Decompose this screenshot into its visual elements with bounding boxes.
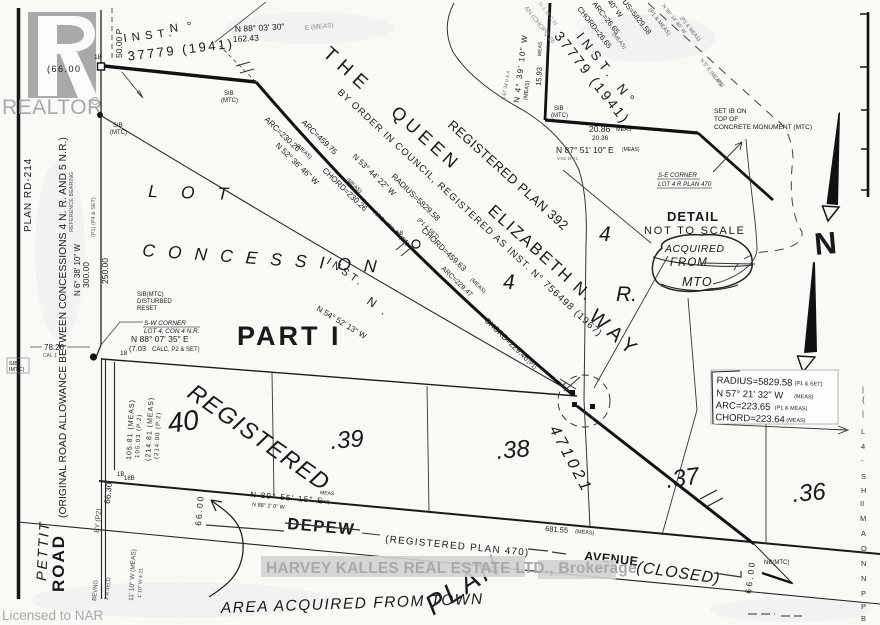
svg-text:N: N bbox=[861, 574, 866, 583]
svg-text:250.00: 250.00 bbox=[100, 258, 110, 284]
svg-text:CONCRETE MONUMENT (MTC): CONCRETE MONUMENT (MTC) bbox=[714, 124, 812, 131]
svg-text:P: P bbox=[861, 602, 866, 611]
svg-text:V-81 1P21: V-81 1P21 bbox=[557, 156, 579, 161]
svg-text:NB(MTC): NB(MTC) bbox=[764, 560, 789, 566]
svg-text:N 87° 51' 10" E: N 87° 51' 10" E bbox=[556, 145, 614, 155]
svg-text:S-E CORNER: S-E CORNER bbox=[658, 172, 697, 179]
svg-text:H: H bbox=[861, 486, 866, 495]
svg-text:.39: .39 bbox=[329, 425, 365, 455]
svg-text:18: 18 bbox=[396, 230, 404, 237]
svg-text:(MTC): (MTC) bbox=[551, 113, 568, 119]
svg-text:SIB: SIB bbox=[224, 91, 234, 97]
svg-text:REFERENCE BEARING: REFERENCE BEARING bbox=[69, 172, 75, 232]
svg-text:18: 18 bbox=[120, 350, 128, 357]
svg-text:18B: 18B bbox=[124, 476, 135, 482]
svg-text:MEAS: MEAS bbox=[616, 127, 632, 133]
svg-text:M: M bbox=[860, 514, 866, 523]
svg-text:(7.03: (7.03 bbox=[129, 344, 146, 353]
svg-text:162.43: 162.43 bbox=[233, 33, 260, 44]
svg-text:20.86: 20.86 bbox=[589, 124, 611, 134]
svg-text:(MEAS): (MEAS) bbox=[622, 147, 640, 153]
svg-text:A: A bbox=[861, 529, 866, 538]
svg-text:18: 18 bbox=[94, 54, 102, 61]
svg-text:(P2): (P2) bbox=[320, 499, 330, 506]
svg-text:REALTOR: REALTOR bbox=[2, 96, 103, 119]
svg-text:II: II bbox=[860, 499, 864, 508]
svg-text:(P1 & MEAS): (P1 & MEAS) bbox=[775, 405, 808, 412]
svg-text:PLAN RD-214: PLAN RD-214 bbox=[23, 158, 34, 232]
svg-text:.37: .37 bbox=[664, 462, 702, 494]
svg-text:40: 40 bbox=[166, 404, 202, 439]
svg-text:4: 4 bbox=[599, 223, 611, 246]
svg-text:4: 4 bbox=[503, 271, 515, 294]
svg-text:P: P bbox=[861, 589, 866, 598]
svg-text:DISTURBED: DISTURBED bbox=[137, 299, 172, 305]
svg-text:Licensed to NAR: Licensed to NAR bbox=[2, 608, 104, 623]
svg-text:MTO: MTO bbox=[682, 275, 713, 289]
svg-text:|: | bbox=[862, 385, 864, 394]
svg-text:CAL 1: CAL 1 bbox=[43, 353, 57, 359]
svg-text:DETAIL: DETAIL bbox=[667, 209, 719, 224]
svg-text:20.36: 20.36 bbox=[592, 135, 609, 142]
svg-text:(ORIGINAL ROAD ALLOWANCE BETWE: (ORIGINAL ROAD ALLOWANCE BETWEEN CONCESS… bbox=[58, 137, 69, 518]
svg-text:(66.00: (66.00 bbox=[47, 64, 82, 74]
svg-text:(P1) (P4 & SET): (P1) (P4 & SET) bbox=[91, 197, 97, 237]
svg-text:TOP OF: TOP OF bbox=[714, 116, 738, 123]
svg-text:.38: .38 bbox=[495, 435, 531, 465]
svg-text:|: | bbox=[862, 409, 864, 418]
svg-text:ACQUIRED: ACQUIRED bbox=[664, 243, 724, 255]
svg-text:ROAD: ROAD bbox=[49, 534, 68, 592]
svg-text:NOT TO SCALE: NOT TO SCALE bbox=[644, 225, 746, 237]
svg-text:ARC=223.65: ARC=223.65 bbox=[716, 400, 771, 413]
svg-text:HARVEY KALLES REAL ESTATE LTD.: HARVEY KALLES REAL ESTATE LTD., Brokerag… bbox=[266, 560, 637, 577]
svg-text:B: B bbox=[861, 614, 866, 623]
svg-text:O: O bbox=[861, 544, 867, 553]
svg-text:SET IB ON: SET IB ON bbox=[714, 108, 747, 115]
svg-text:LOT 4 R PLAN 470: LOT 4 R PLAN 470 bbox=[658, 181, 712, 188]
svg-text:N: N bbox=[813, 225, 838, 262]
svg-text:300.00: 300.00 bbox=[81, 262, 91, 288]
svg-text:(MEAS): (MEAS) bbox=[786, 418, 806, 425]
svg-text:(MEAS): (MEAS) bbox=[794, 394, 814, 401]
svg-text:66.30: 66.30 bbox=[102, 482, 114, 504]
svg-text:MEAS: MEAS bbox=[537, 41, 544, 56]
svg-text:15.93: 15.93 bbox=[534, 67, 544, 86]
svg-text:SIB: SIB bbox=[554, 106, 564, 112]
svg-text:4: 4 bbox=[861, 442, 865, 451]
svg-text:S: S bbox=[861, 472, 866, 481]
svg-text:R.: R. bbox=[616, 283, 637, 306]
svg-text:PART I: PART I bbox=[237, 321, 342, 351]
svg-text:(MTC): (MTC) bbox=[110, 130, 127, 136]
svg-text:CALC, P2 & SET): CALC, P2 & SET) bbox=[152, 347, 200, 353]
svg-text:RESET: RESET bbox=[137, 306, 157, 312]
svg-text:N: N bbox=[861, 559, 866, 568]
svg-text:.36: .36 bbox=[791, 478, 827, 508]
svg-text:(MTC): (MTC) bbox=[221, 98, 238, 104]
svg-text:SIB: SIB bbox=[113, 123, 123, 129]
svg-text:(P1 & SET): (P1 & SET) bbox=[794, 381, 822, 388]
svg-text:S-W CORNER: S-W CORNER bbox=[144, 320, 186, 327]
svg-text:78.26: 78.26 bbox=[44, 343, 65, 352]
svg-text:N 88° 07' 35" E: N 88° 07' 35" E bbox=[131, 334, 189, 344]
svg-text:L: L bbox=[861, 427, 865, 436]
svg-text:IMTC|: IMTC| bbox=[9, 367, 24, 373]
svg-text:N 57° 21' 32" W: N 57° 21' 32" W bbox=[716, 388, 783, 401]
svg-text:SIB(MTC): SIB(MTC) bbox=[137, 292, 164, 298]
svg-text:LOT: LOT bbox=[148, 181, 252, 205]
